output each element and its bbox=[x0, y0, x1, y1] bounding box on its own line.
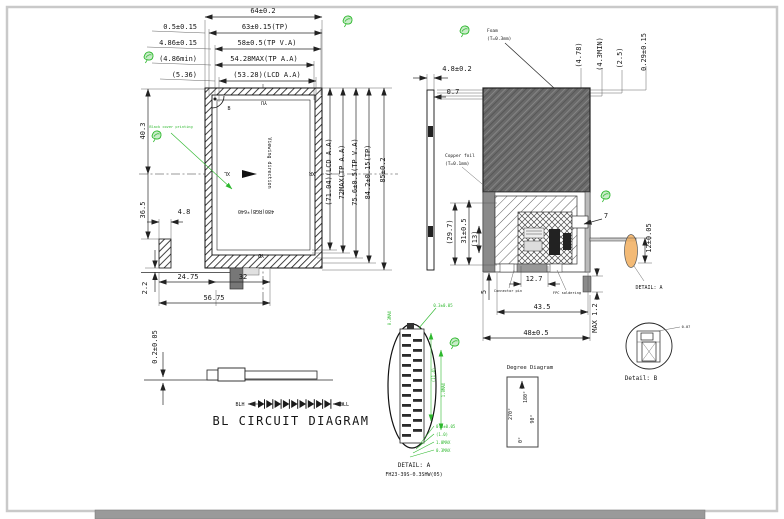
svg-text:4.8: 4.8 bbox=[178, 208, 191, 216]
svg-text:(11.4): (11.4) bbox=[431, 368, 436, 382]
foam-leader bbox=[505, 43, 554, 88]
engineering-drawing: B 480(RGB)*640 Viewing direction YU YD X… bbox=[0, 0, 784, 519]
bl-profile-step bbox=[207, 370, 218, 380]
svg-text:58±0.5(TP V.A): 58±0.5(TP V.A) bbox=[237, 39, 296, 47]
blh-label: BLH bbox=[235, 402, 244, 408]
approval-stamp-icon bbox=[460, 26, 469, 37]
copper-thickness-label: (T=0.1mm) bbox=[445, 161, 469, 167]
svg-text:(4.86min): (4.86min) bbox=[159, 55, 197, 63]
dim-bl-thickness: 0.2±0.05 bbox=[151, 330, 159, 364]
svg-text:36.5: 36.5 bbox=[139, 202, 147, 219]
degree-diagram-title: Degree Diagram bbox=[507, 365, 554, 371]
bl-circuit-diagram: 0.2±0.05 BLH BLL BL CIRCUIT DIAGRAM bbox=[144, 330, 370, 428]
component-ic bbox=[524, 228, 544, 238]
svg-text:84.2±0.15(TP): 84.2±0.15(TP) bbox=[364, 145, 372, 200]
svg-text:12±0.05: 12±0.05 bbox=[645, 223, 653, 253]
bottom-pad bbox=[500, 264, 514, 272]
svg-text:1.0MAX: 1.0MAX bbox=[441, 382, 446, 397]
rear-rail-right bbox=[585, 192, 590, 272]
svg-text:63±0.15(TP): 63±0.15(TP) bbox=[242, 23, 288, 31]
foam-thickness-label: (T=0.3mm) bbox=[487, 36, 511, 42]
bottom-pad bbox=[550, 264, 562, 272]
resolution-label: 480(RGB)*640 bbox=[238, 208, 274, 214]
foam-label: Foam bbox=[487, 28, 498, 34]
detail-b-marker: B bbox=[227, 106, 230, 112]
component-connector bbox=[563, 233, 571, 250]
side-profile bbox=[427, 90, 434, 270]
svg-text:40.3: 40.3 bbox=[139, 123, 147, 140]
svg-text:85±0.2: 85±0.2 bbox=[379, 157, 387, 182]
side-chip bbox=[428, 126, 433, 137]
degree-right: 90° bbox=[530, 414, 536, 423]
bl-profile-strip bbox=[245, 371, 317, 379]
svg-text:56.75: 56.75 bbox=[203, 294, 224, 302]
detail-a-leader bbox=[634, 266, 644, 281]
detail-b-title: Detail: B bbox=[625, 375, 658, 382]
svg-text:0.3±0.05: 0.3±0.05 bbox=[436, 424, 456, 429]
degree-bottom: 0° bbox=[518, 437, 524, 443]
component-ic bbox=[524, 241, 542, 251]
viewing-direction-label: Viewing direction bbox=[266, 137, 272, 188]
front-right-dimensions: (71.04)(LCD A.A) 72MAX(TP A.A) 75.6±0.5(… bbox=[312, 88, 392, 270]
svg-text:48±0.5: 48±0.5 bbox=[523, 329, 548, 337]
black-cover-note: Black cover printing bbox=[149, 125, 192, 129]
approval-stamp-icon bbox=[450, 338, 459, 349]
svg-text:0.3MAX: 0.3MAX bbox=[436, 448, 451, 453]
foam-pad bbox=[483, 88, 590, 192]
rear-rail-left bbox=[483, 192, 495, 272]
connector-tab bbox=[407, 323, 414, 329]
detail-b: 0.07 Detail: B bbox=[625, 323, 691, 382]
svg-text:(4.3MIN): (4.3MIN) bbox=[596, 37, 604, 71]
svg-text:5: 5 bbox=[480, 290, 488, 294]
svg-text:0.29±0.15: 0.29±0.15 bbox=[640, 33, 648, 71]
svg-text:(1.0): (1.0) bbox=[436, 432, 448, 437]
svg-text:1.0MAX: 1.0MAX bbox=[436, 440, 451, 445]
svg-text:(13): (13) bbox=[471, 231, 479, 248]
rear-view: Foam (T=0.3mm) Copper foil (T=0.1mm) DET… bbox=[445, 26, 663, 341]
bottom-pad bbox=[517, 264, 547, 272]
svg-text:54.28MAX(TP A.A): 54.28MAX(TP A.A) bbox=[230, 55, 297, 63]
rear-tab bbox=[583, 276, 591, 292]
dim-foam-gap: 0.7 bbox=[447, 88, 460, 96]
svg-text:(4.78): (4.78) bbox=[575, 42, 583, 67]
svg-text:7: 7 bbox=[604, 212, 608, 220]
detail-a-reference: DETAIL: A bbox=[635, 285, 662, 291]
axis-label-xr: XR bbox=[308, 170, 315, 176]
svg-text:24.75: 24.75 bbox=[177, 273, 198, 281]
svg-text:75.6±0.5(TP V.A): 75.6±0.5(TP V.A) bbox=[351, 138, 359, 205]
detail-a-highlight bbox=[625, 235, 638, 268]
axis-label-yu: YU bbox=[261, 99, 267, 105]
svg-text:43.5: 43.5 bbox=[534, 303, 551, 311]
dim-thickness: 4.8±0.2 bbox=[442, 65, 472, 73]
bll-label: BLL bbox=[340, 402, 349, 408]
approval-stamp-icon bbox=[152, 131, 161, 142]
svg-text:0.3±0.05: 0.3±0.05 bbox=[433, 303, 453, 308]
title-block-bar bbox=[95, 510, 705, 519]
svg-text:(2.5): (2.5) bbox=[616, 47, 624, 68]
detail-b-dim: 0.07 bbox=[682, 325, 691, 329]
bl-profile-body bbox=[218, 368, 245, 381]
side-chip bbox=[428, 226, 433, 237]
detail-a-title: DETAIL: A bbox=[398, 462, 431, 469]
copper-foil-label: Copper foil bbox=[445, 153, 475, 159]
approval-stamp-icon bbox=[144, 52, 153, 63]
svg-text:4.86±0.15: 4.86±0.15 bbox=[159, 39, 197, 47]
svg-text:(71.04)(LCD A.A): (71.04)(LCD A.A) bbox=[325, 138, 333, 205]
svg-text:Connector pin: Connector pin bbox=[494, 289, 522, 293]
svg-text:31±0.5: 31±0.5 bbox=[460, 218, 468, 243]
drawing-sheet: B 480(RGB)*640 Viewing direction YU YD X… bbox=[0, 0, 784, 519]
svg-text:64±0.2: 64±0.2 bbox=[250, 7, 275, 15]
svg-text:MAX 1.2: MAX 1.2 bbox=[591, 303, 599, 333]
detail-a: 0.3MAX 0.3±0.05 (11.4) 1.0MAX 0.3±0.05 (… bbox=[385, 303, 459, 478]
page-border bbox=[7, 7, 777, 511]
component-connector bbox=[549, 229, 560, 255]
svg-text:72MAX(TP A.A): 72MAX(TP A.A) bbox=[338, 145, 346, 200]
degree-diagram: Degree Diagram 180° 270° 90° 0° bbox=[507, 365, 554, 447]
axis-label-yd: YD bbox=[258, 252, 264, 258]
svg-text:(53.28)(LCD A.A): (53.28)(LCD A.A) bbox=[233, 71, 300, 79]
detail-b-leader bbox=[658, 327, 680, 331]
approval-stamp-icon bbox=[601, 191, 610, 202]
svg-text:0.5±0.15: 0.5±0.15 bbox=[163, 23, 197, 31]
approval-stamp-icon bbox=[343, 16, 352, 27]
svg-text:32: 32 bbox=[239, 273, 247, 281]
bl-circuit-title: BL CIRCUIT DIAGRAM bbox=[212, 414, 369, 428]
axis-label-xl: XL bbox=[224, 170, 230, 176]
rear-notch bbox=[572, 216, 588, 228]
side-wall-section bbox=[159, 239, 171, 268]
svg-text:0.3MAX: 0.3MAX bbox=[387, 310, 392, 325]
svg-text:12.7: 12.7 bbox=[526, 275, 543, 283]
svg-text:(5.36): (5.36) bbox=[172, 71, 197, 79]
svg-text:FPC soldering: FPC soldering bbox=[553, 291, 581, 295]
degree-top: 180° bbox=[523, 391, 529, 403]
degree-left: 270° bbox=[508, 408, 514, 420]
svg-text:(29.7): (29.7) bbox=[446, 219, 454, 244]
bl-diode-chain bbox=[258, 399, 331, 409]
svg-text:2.2: 2.2 bbox=[141, 282, 149, 295]
detail-a-part-number: FH23-39S-0.3SHW(05) bbox=[385, 472, 442, 478]
